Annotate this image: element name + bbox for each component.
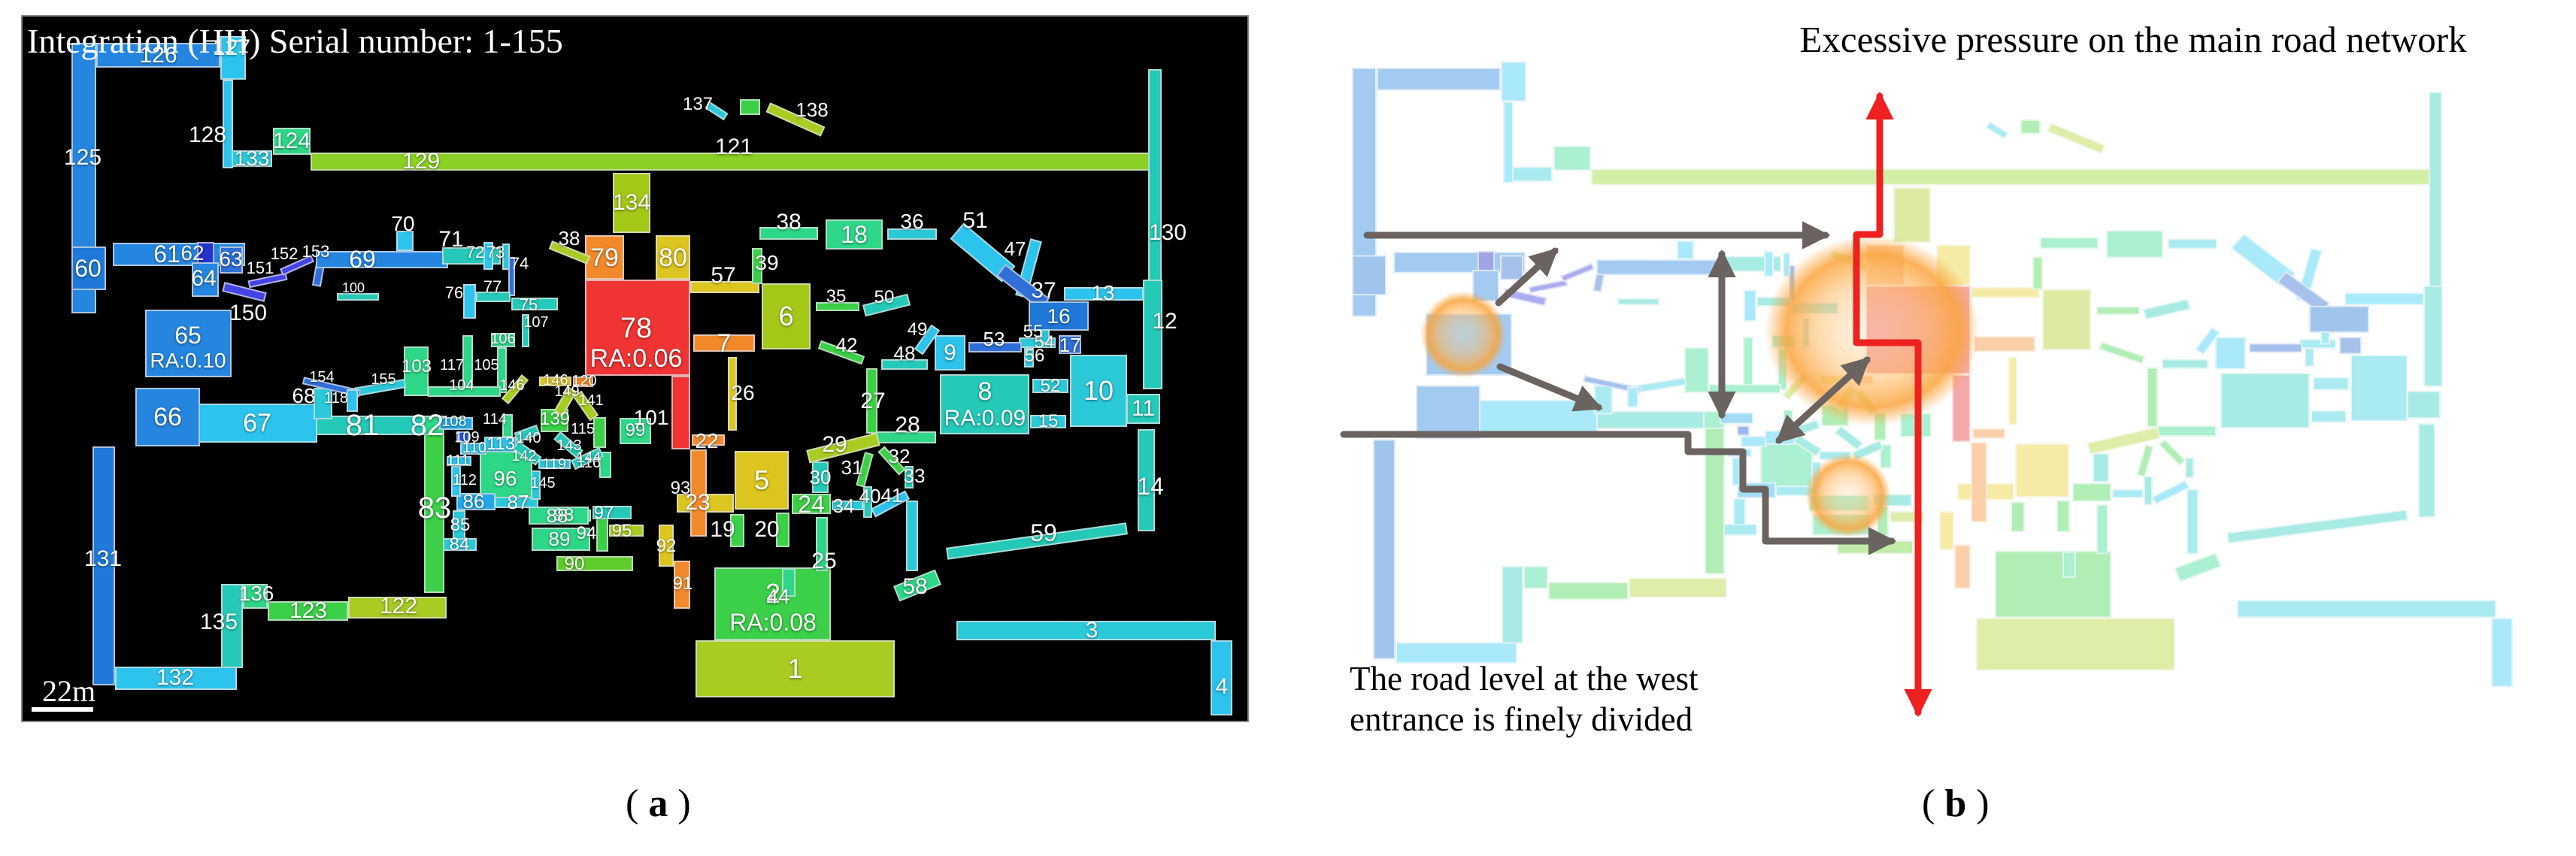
figure-canvas: 125126127128133124129130134798078RA:0.06…	[0, 0, 2576, 856]
road-segment-107	[1802, 317, 1810, 348]
road-segment-92	[1939, 511, 1954, 550]
road-segment-66	[1416, 386, 1480, 440]
road-segment-20	[2056, 501, 2070, 532]
road-segment-113	[1765, 431, 1797, 445]
road-segment-133	[1512, 167, 1553, 182]
road-segment-91	[1954, 545, 1971, 589]
road-segment-32	[2158, 439, 2186, 466]
road-segment-44	[2062, 552, 2076, 578]
road-segment-7	[1974, 336, 2035, 352]
road-segment-120	[1853, 375, 1874, 385]
road-segment-90	[1837, 540, 1914, 554]
flow-arrow	[1779, 360, 1867, 440]
road-segment-94	[1877, 504, 1889, 536]
road-segment-49	[2195, 327, 2220, 355]
road-segment-58	[2174, 552, 2222, 582]
road-segment-127	[1501, 62, 1526, 101]
road-segment-72	[1764, 251, 1774, 277]
road-segment-48	[2162, 359, 2208, 369]
road-segment-16	[2309, 306, 2369, 333]
road-segment-96	[1760, 442, 1813, 495]
road-segment-143	[1834, 425, 1864, 451]
annotation-west-entrance: The road level at the west entrance is f…	[1350, 658, 1699, 740]
panel-a-background	[21, 15, 1249, 722]
road-segment-87	[1775, 485, 1819, 496]
road-segment-79	[1865, 245, 1905, 286]
highlight-ellipse	[1805, 453, 1891, 537]
road-segment-61	[1393, 252, 1526, 274]
annotation-west-entrance-line2: entrance is finely divided	[1350, 699, 1699, 740]
scale-bar-label: 22m	[42, 673, 95, 709]
road-segment-29	[2087, 427, 2160, 455]
road-segment-37	[2277, 271, 2330, 314]
road-segment-55	[2320, 331, 2330, 344]
road-segment-56	[2305, 348, 2314, 367]
road-segment-150	[1502, 288, 1547, 307]
road-segment-59	[2226, 510, 2408, 544]
road-segment-75	[1792, 302, 1838, 314]
road-segment-36	[2168, 238, 2217, 249]
road-segment-93	[1971, 442, 1987, 522]
road-segment-28	[2156, 425, 2217, 437]
road-segment-131	[1373, 440, 1396, 660]
road-segment-144	[1851, 440, 1884, 461]
road-segment-155	[1633, 377, 1687, 394]
road-segment-67	[1477, 400, 1598, 436]
road-segment-53	[2249, 343, 2302, 353]
highlight-ellipse	[1420, 291, 1506, 378]
road-segment-124	[1553, 146, 1591, 171]
road-segment-121	[2020, 119, 2041, 134]
road-segment-14	[2418, 423, 2435, 517]
road-segment-146	[1782, 373, 1809, 401]
road-segment-17	[2339, 337, 2362, 354]
flow-arrow	[1344, 434, 1892, 541]
road-segment-11	[2407, 391, 2441, 419]
highlight-ellipse	[1765, 235, 1980, 426]
road-segment-97	[1873, 494, 1912, 507]
caption-a-paren-left: (	[626, 782, 648, 825]
road-segment-81	[1596, 411, 1705, 429]
road-segment-134	[1893, 187, 1931, 243]
road-segment-118	[1627, 387, 1638, 408]
road-segment-83	[1705, 428, 1725, 574]
road-segment-146	[1820, 375, 1852, 384]
road-segment-4	[2491, 618, 2513, 687]
road-segment-38	[2040, 237, 2099, 250]
road-segment-110	[1741, 436, 1767, 447]
road-segment-112	[1732, 458, 1741, 486]
caption-b-paren-left: (	[1922, 782, 1944, 825]
road-segment-71	[1723, 256, 1781, 272]
road-segment-153	[1593, 267, 1606, 293]
road-segment-89	[1812, 514, 1871, 536]
road-segment-74	[1789, 265, 1796, 301]
road-segment-99	[1900, 413, 1932, 437]
road-segment-41	[2151, 480, 2190, 505]
road-segment-22	[1972, 428, 2005, 439]
road-segment-62	[1477, 251, 1495, 273]
road-segment-136	[1523, 566, 1548, 588]
road-segment-142	[1793, 434, 1822, 458]
road-segment-140	[1795, 419, 1821, 436]
road-segment-40	[2144, 476, 2153, 505]
caption-b-letter: b	[1944, 782, 1966, 825]
road-segment-47	[2296, 248, 2323, 303]
road-segment-103	[1684, 347, 1709, 393]
road-segment-109	[1737, 425, 1750, 436]
road-segment-42	[2099, 341, 2145, 364]
caption-b-paren-right: )	[1966, 782, 1989, 825]
road-segment-115	[1874, 413, 1887, 441]
road-segment-70	[1677, 240, 1694, 259]
road-segment-5	[2015, 443, 2069, 498]
road-segment-154	[1583, 375, 1641, 394]
road-segment-128	[1503, 101, 1514, 183]
road-segment-95	[1890, 511, 1924, 522]
road-segment-63	[1500, 256, 1523, 280]
road-segment-108	[1720, 413, 1753, 425]
road-segment-35	[2096, 307, 2140, 315]
road-segment-6	[2042, 289, 2091, 350]
road-segment-88	[1809, 495, 1869, 511]
road-segment-65	[1426, 313, 1512, 376]
flow-arrow	[1499, 251, 1555, 303]
road-segment-80	[1936, 245, 1971, 286]
road-segment-19	[2011, 501, 2025, 532]
road-segment-50	[2143, 298, 2191, 319]
road-segment-139	[1821, 405, 1849, 427]
road-segment-31	[2136, 444, 2153, 477]
road-segment-18	[2106, 230, 2163, 258]
road-segment-2	[1995, 551, 2111, 618]
road-segment-77	[1756, 297, 1791, 307]
road-segment-152	[1560, 263, 1595, 283]
road-segment-33	[2185, 458, 2194, 479]
road-segment-9	[2215, 337, 2246, 369]
road-segment-119	[1819, 451, 1851, 460]
road-segment-38	[1829, 250, 1871, 271]
caption-a-letter: a	[648, 782, 668, 825]
scale-bar	[32, 707, 93, 712]
road-segment-34	[2112, 489, 2144, 498]
annotation-main-road-pressure: Excessive pressure on the main road netw…	[1750, 18, 2517, 61]
road-segment-69	[1596, 259, 1729, 275]
road-segment-135	[1502, 566, 1523, 643]
road-segment-12	[2423, 286, 2443, 386]
red-route-arrow	[1856, 96, 1918, 712]
road-segment-104	[1708, 384, 1781, 394]
road-segment-15	[2311, 410, 2347, 423]
road-segment-1	[1976, 618, 2175, 670]
road-segment-114	[1783, 410, 1793, 431]
road-segment-126	[1377, 68, 1501, 90]
road-segment-3	[2237, 600, 2496, 618]
road-segment-111	[1727, 449, 1752, 458]
road-segment-85	[1733, 498, 1746, 527]
road-segment	[2187, 489, 2199, 555]
road-segment-122	[1629, 578, 1727, 598]
road-segment-105	[1777, 348, 1787, 390]
road-segment-27	[2147, 368, 2158, 428]
flow-arrow	[1500, 367, 1599, 407]
road-segment-64	[1472, 270, 1499, 301]
road-segment-13	[2344, 292, 2424, 305]
road-segment-10	[2350, 355, 2408, 421]
road-segment-39	[2032, 256, 2043, 289]
road-segment-57	[1971, 287, 2040, 298]
caption-a: ( a )	[626, 782, 691, 826]
road-segment-25	[2096, 504, 2108, 554]
caption-a-paren-right: )	[668, 782, 690, 825]
road-segment-149	[1834, 384, 1857, 412]
road-segment-54	[2299, 339, 2336, 349]
road-segment-76	[1744, 290, 1756, 322]
road-segment-151	[1529, 280, 1568, 294]
caption-b: ( b )	[1922, 782, 1990, 826]
road-segment-106	[1771, 335, 1796, 348]
road-segment-24	[2072, 483, 2111, 502]
road-segment-138	[2047, 123, 2106, 154]
road-segment-100	[1617, 298, 1659, 305]
road-segment-141	[1853, 388, 1879, 416]
road-segment-98	[1834, 498, 1871, 509]
panel-a-title: Integration (HH) Serial number: 1-155	[27, 21, 563, 61]
road-segment-78	[1865, 286, 1971, 374]
road-segment-86	[1737, 482, 1776, 498]
road-segment-51	[2231, 233, 2296, 288]
annotation-west-entrance-line1: The road level at the west	[1350, 658, 1699, 699]
road-segment-129	[1591, 168, 2431, 185]
road-segment-68	[1594, 386, 1613, 415]
road-segment-26	[2008, 357, 2017, 425]
road-segment-84	[1722, 524, 1757, 536]
road-segment-82	[1703, 411, 1725, 429]
road-segment-117	[1743, 337, 1753, 385]
road-segment-123	[1548, 582, 1629, 600]
road-segment-145	[1811, 461, 1821, 488]
road-segment-30	[2093, 453, 2109, 482]
road-segment-52	[2313, 377, 2349, 390]
road-segment-23	[1957, 483, 2014, 501]
road-segment-130	[2429, 92, 2442, 287]
road-segment-125	[1352, 68, 1377, 317]
road-segment-116	[1880, 444, 1892, 468]
road-segment-137	[1985, 122, 2008, 140]
road-segment-8	[2220, 373, 2310, 428]
road-segment-60	[1352, 256, 1386, 295]
road-segment-101	[1952, 374, 1971, 442]
road-segment-73	[1783, 253, 1790, 277]
